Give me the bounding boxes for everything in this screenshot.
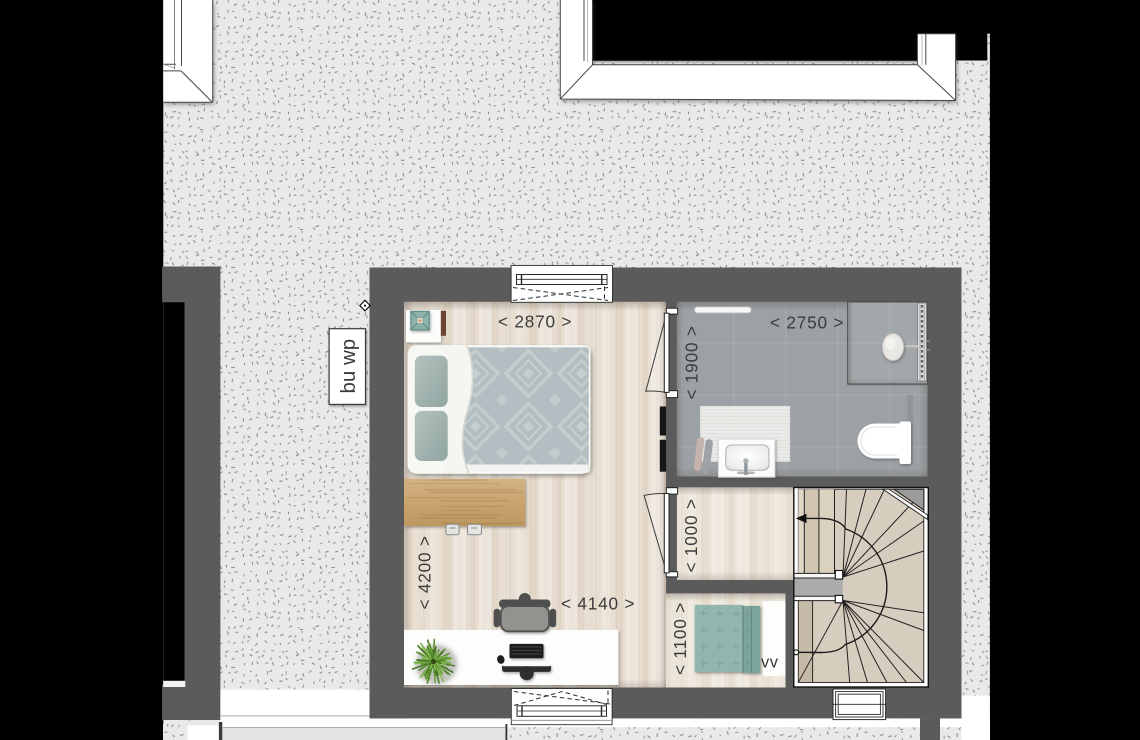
svg-text:vv: vv bbox=[761, 654, 779, 672]
svg-text:< 4140 >: < 4140 > bbox=[561, 594, 635, 614]
svg-text:< 4200 >: < 4200 > bbox=[414, 535, 434, 609]
svg-text:< 2870 >: < 2870 > bbox=[498, 312, 572, 332]
svg-text:< 1000 >: < 1000 > bbox=[681, 498, 701, 572]
svg-text:< 1100 >: < 1100 > bbox=[670, 602, 690, 675]
svg-text:< 2750 >: < 2750 > bbox=[770, 313, 844, 333]
svg-text:bu wp: bu wp bbox=[337, 339, 360, 394]
svg-text:< 1900 >: < 1900 > bbox=[682, 325, 702, 399]
